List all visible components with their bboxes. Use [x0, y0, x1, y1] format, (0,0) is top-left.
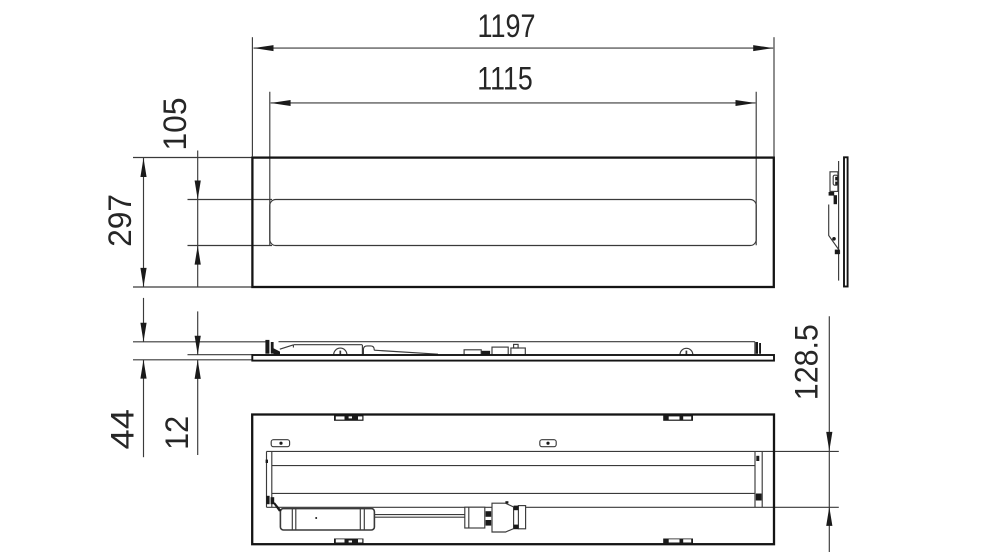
- svg-text:128.5: 128.5: [789, 324, 825, 400]
- svg-text:12: 12: [159, 416, 195, 450]
- svg-text:44: 44: [104, 409, 140, 450]
- svg-text:105: 105: [157, 98, 193, 151]
- svg-text:1115: 1115: [477, 60, 533, 96]
- svg-text:297: 297: [102, 194, 138, 247]
- svg-text:1197: 1197: [478, 8, 536, 44]
